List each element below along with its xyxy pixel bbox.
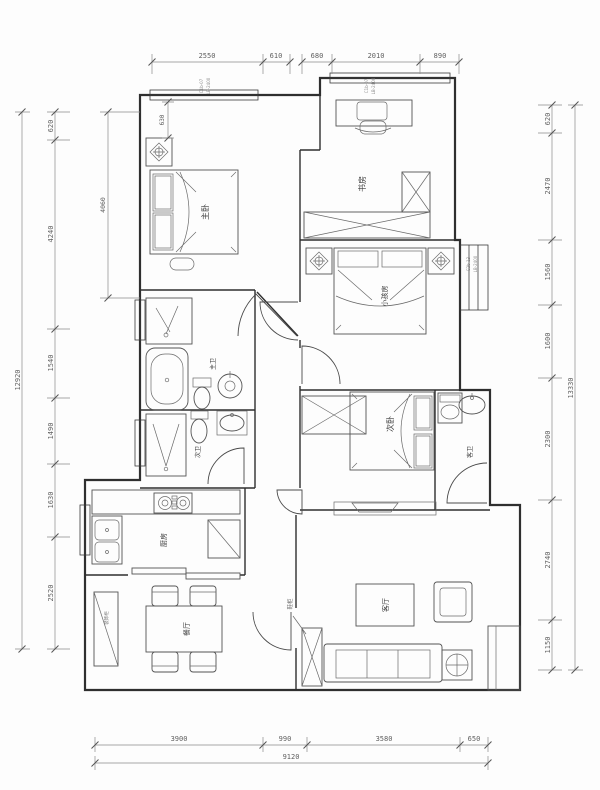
- floor-plan-drawing: 主卧 书房 小孩房: [0, 0, 600, 790]
- guest-bath-label: 客卫: [466, 446, 474, 458]
- dimension-chain-top: 2550 610 680 2010 890: [149, 52, 463, 74]
- living: 鞋柜 客厅: [286, 582, 520, 690]
- nightstand-lamp-icon: [146, 138, 172, 166]
- window-second-bath: [135, 420, 145, 466]
- dimension-chain-right: 620 2470 1560 1600 2300 2740 1150 13330: [538, 102, 583, 674]
- guest-bath: 客卫: [438, 393, 485, 458]
- window-code-right-1: C2b-13: [466, 256, 471, 271]
- hall-cabinet: [94, 592, 118, 666]
- dim-right-4: 2300: [544, 431, 552, 448]
- washbasin-icon: [217, 411, 247, 435]
- kitchen-counter: [92, 490, 240, 514]
- master-bath: 主卫: [146, 298, 242, 410]
- double-sink-icon: [92, 516, 122, 564]
- dim-bottom-total: 9120: [283, 753, 300, 761]
- second-bath-label: 次卫: [194, 446, 202, 458]
- dim-top-0: 2550: [199, 52, 216, 60]
- door-guest-bath: [447, 463, 487, 503]
- side-table-lamp-icon: [442, 650, 472, 680]
- dim-right-3: 1600: [544, 333, 552, 350]
- second-bath: 次卫: [146, 411, 247, 476]
- fridge-icon: [208, 520, 240, 558]
- window-kitchen: [80, 505, 90, 555]
- study: 书房: [304, 100, 430, 238]
- dim-right-1: 2470: [544, 178, 552, 195]
- dining-chair: [152, 586, 178, 606]
- living-label: 客厅: [381, 598, 390, 612]
- door-master-bath: [238, 294, 297, 336]
- dim-left-total: 12920: [14, 369, 22, 390]
- dim-window-offset: 630: [159, 114, 166, 125]
- dining-chair: [152, 652, 178, 672]
- dim-top-2: 680: [311, 52, 324, 60]
- bay-window-kids-room: [460, 245, 488, 310]
- wardrobe-study-bottom: [304, 212, 430, 238]
- shower-icon: [146, 414, 186, 476]
- dim-right-5: 2740: [544, 552, 552, 569]
- dim-right-0: 620: [544, 113, 552, 126]
- dim-bedroom-depth: 4060: [99, 197, 107, 213]
- shoe-cabinet: [293, 616, 322, 686]
- round-basin-icon: [218, 371, 242, 398]
- dining: 装饰柜 餐厅: [94, 586, 222, 672]
- master-bedroom: 主卧: [146, 138, 238, 270]
- window-master-bedroom: [150, 90, 258, 100]
- desk: [336, 100, 412, 134]
- sofa: [324, 644, 442, 682]
- window-code-top-right-1: C1b-07: [364, 78, 369, 93]
- dim-top-3: 2010: [368, 52, 385, 60]
- toilet-icon: [191, 411, 208, 443]
- bed-master: [150, 170, 238, 254]
- toilet-icon: [193, 378, 211, 409]
- window-code-top-right-2: LB-2400: [371, 77, 376, 94]
- window-code-top-left-1: C1b-07: [199, 78, 204, 93]
- stove-icon: [154, 493, 192, 513]
- dining-chair: [190, 586, 216, 606]
- armchair: [434, 582, 472, 622]
- door-kids-room: [302, 346, 340, 384]
- bathtub-icon: [146, 348, 188, 410]
- floor-plan-sheet: 主卧 书房 小孩房: [0, 0, 600, 790]
- window-code-top-left-2: LB-2400: [206, 77, 211, 94]
- tv-icon: [334, 502, 436, 515]
- dim-bottom-2: 3580: [376, 735, 393, 743]
- study-label: 书房: [357, 176, 367, 192]
- laundry-sink-icon: [438, 393, 462, 423]
- wardrobe-second-bedroom: [302, 396, 366, 434]
- shower-icon: [146, 298, 192, 344]
- dim-right-6: 1150: [544, 637, 552, 654]
- dim-bottom-1: 990: [279, 735, 292, 743]
- second-bedroom: 次卧: [302, 392, 436, 515]
- nightstand-lamp-icon: [428, 248, 454, 274]
- hall-cabinet-label: 装饰柜: [103, 611, 110, 625]
- dining-label: 餐厅: [182, 622, 191, 636]
- master-bedroom-label: 主卧: [200, 204, 210, 220]
- dim-right-total: 13330: [567, 377, 575, 398]
- sliding-door-kitchen: [132, 568, 240, 579]
- dim-bottom-0: 3900: [171, 735, 188, 743]
- dim-left-4: 1630: [47, 492, 55, 509]
- washbasin-icon: [459, 393, 485, 414]
- internal-dimensions: 630 4060: [99, 99, 174, 302]
- dimension-chain-left: 620 4240 1540 1490 1630 2520 12920: [14, 109, 70, 653]
- window-code-right-2: LB-2400: [473, 255, 478, 272]
- dim-left-0: 620: [47, 120, 55, 133]
- dim-top-4: 890: [434, 52, 447, 60]
- window-study: [330, 73, 450, 83]
- dim-left-3: 1490: [47, 423, 55, 440]
- dining-chair: [190, 652, 216, 672]
- door-master-bedroom: [260, 302, 298, 340]
- door-second-bath: [208, 448, 244, 484]
- second-bedroom-label: 次卧: [385, 416, 395, 432]
- dimension-chain-bottom: 3900 990 3580 650 9120: [92, 735, 492, 770]
- windows: [80, 73, 488, 555]
- window-code-labels: C1b-07 LB-2400 C1b-07 LB-2400: [199, 77, 376, 94]
- master-bath-label: 主卫: [209, 358, 217, 370]
- shoe-cabinet-label: 鞋柜: [286, 598, 294, 610]
- bench-icon: [170, 258, 194, 270]
- kitchen: 厨房: [92, 490, 240, 564]
- bed-kids: [334, 248, 426, 334]
- door-dining-partition: [253, 612, 291, 650]
- kids-room-label: 小孩房: [380, 286, 389, 307]
- window-master-bath: [135, 300, 145, 340]
- corner-cabinet: [488, 626, 520, 690]
- dim-top-1: 610: [270, 52, 283, 60]
- kitchen-label: 厨房: [159, 533, 168, 547]
- dim-left-2: 1540: [47, 355, 55, 372]
- dim-left-1: 4240: [47, 226, 55, 243]
- dim-bottom-3: 650: [468, 735, 481, 743]
- kids-room: 小孩房 C2b-13 LB-2400: [306, 248, 478, 334]
- dim-left-5: 2520: [47, 585, 55, 602]
- dim-right-2: 1560: [544, 264, 552, 281]
- door-second-bedroom: [277, 490, 302, 514]
- nightstand-lamp-icon: [306, 248, 332, 274]
- wardrobe-study-side: [402, 172, 430, 212]
